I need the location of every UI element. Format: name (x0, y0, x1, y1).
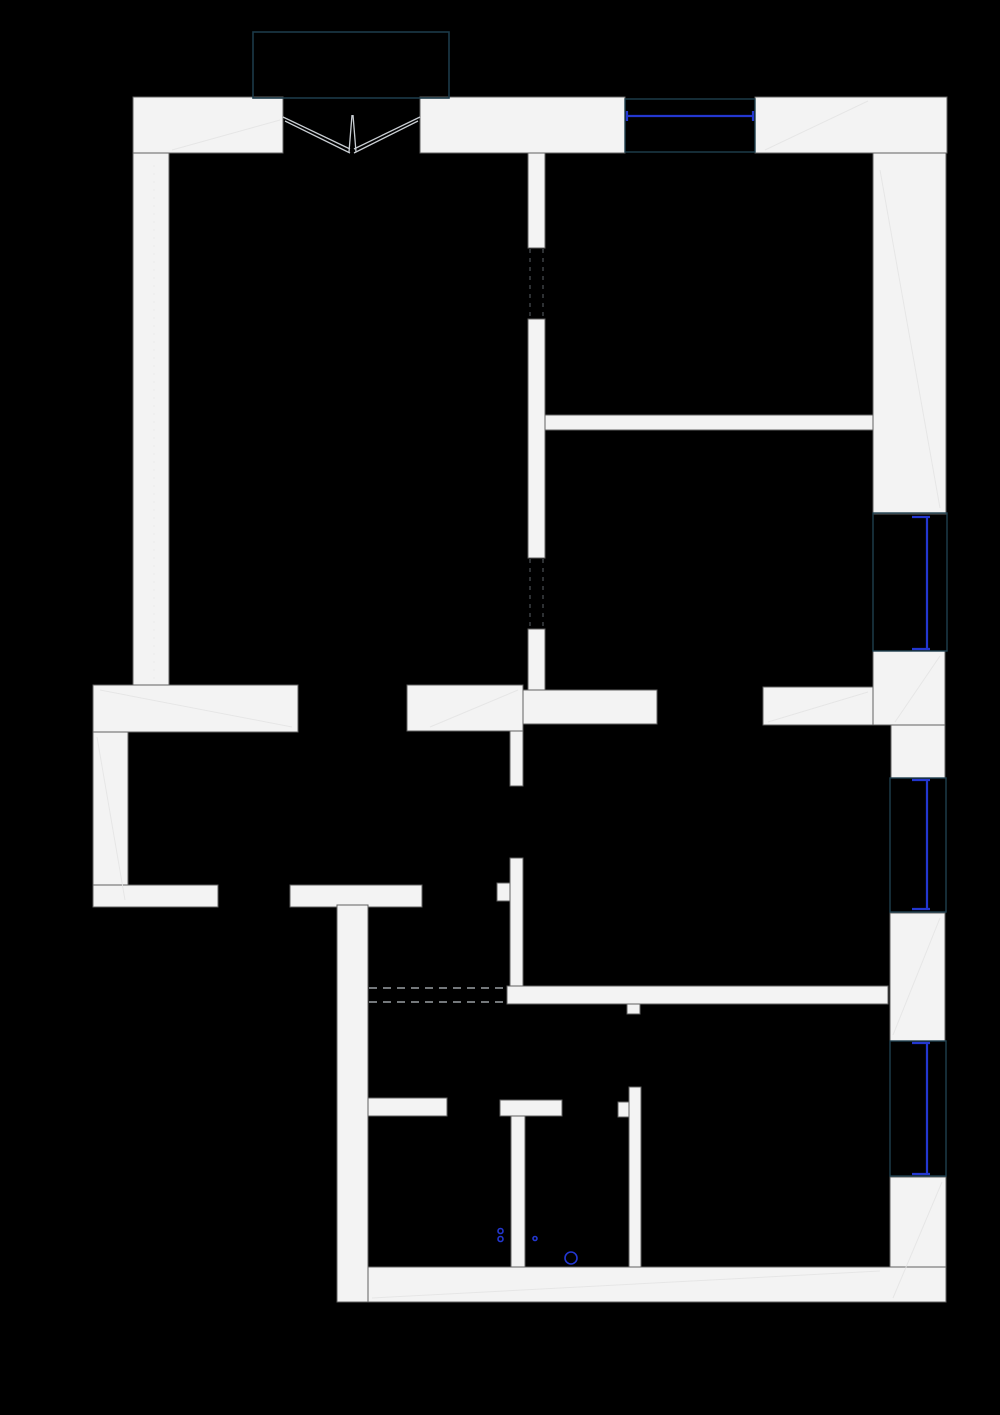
wall-hall-band-c (763, 687, 873, 725)
wall-wc-wall-b (629, 1087, 641, 1267)
wall-wc-stub-left (368, 1098, 447, 1116)
wall-partition-vert-a (528, 153, 545, 248)
window-frame-top (625, 99, 755, 152)
fixture-dot-a (498, 1229, 503, 1234)
wall-left-wall-lower (93, 732, 128, 907)
wall-bottom-left-wall (337, 905, 368, 1302)
door-swing-line (285, 121, 350, 153)
fixture-dot-c (533, 1237, 537, 1241)
wall-left-wall-upper (133, 153, 169, 685)
wall-top-wall-mid (420, 97, 625, 153)
wall-room-divider-right (545, 415, 873, 430)
door-swing-line (354, 117, 420, 149)
door-swing-line (354, 121, 418, 153)
wall-partition-vert-b (528, 319, 545, 558)
fixture-circle-large (565, 1252, 577, 1264)
wall-bottom-left-band-a (93, 885, 218, 907)
wall-lower-cross-band (507, 986, 888, 1004)
porch-outline (253, 32, 449, 98)
wall-hall-band-a (407, 685, 523, 731)
wall-wc-flag (618, 1102, 629, 1117)
fixture-dot-b (498, 1237, 503, 1242)
wall-wc-stub-right (500, 1100, 562, 1116)
wall-top-wall-right (755, 97, 947, 153)
wall-hall-vert-lower (510, 858, 523, 1004)
wall-hall-stub (497, 883, 510, 901)
window-frame-right-2 (890, 778, 946, 912)
wall-bottom-left-band-b (290, 885, 422, 907)
wall-hall-band-b (523, 690, 657, 724)
door-swing-line (349, 115, 352, 152)
floorplan-canvas (0, 0, 1000, 1415)
floorplan-svg (0, 0, 1000, 1415)
wall-right-junction-lower (891, 725, 945, 778)
wall-hall-vert-upper (510, 731, 523, 786)
door-swing-line (353, 115, 356, 152)
wall-partition-vert-c (528, 629, 545, 690)
wall-lower-cross-stub (627, 1004, 640, 1014)
window-frame-right-1 (873, 513, 947, 651)
wall-right-junction-upper (873, 651, 945, 725)
wall-wc-wall-a (511, 1116, 525, 1267)
window-frame-right-3 (890, 1041, 946, 1176)
door-swing-line (283, 117, 350, 149)
